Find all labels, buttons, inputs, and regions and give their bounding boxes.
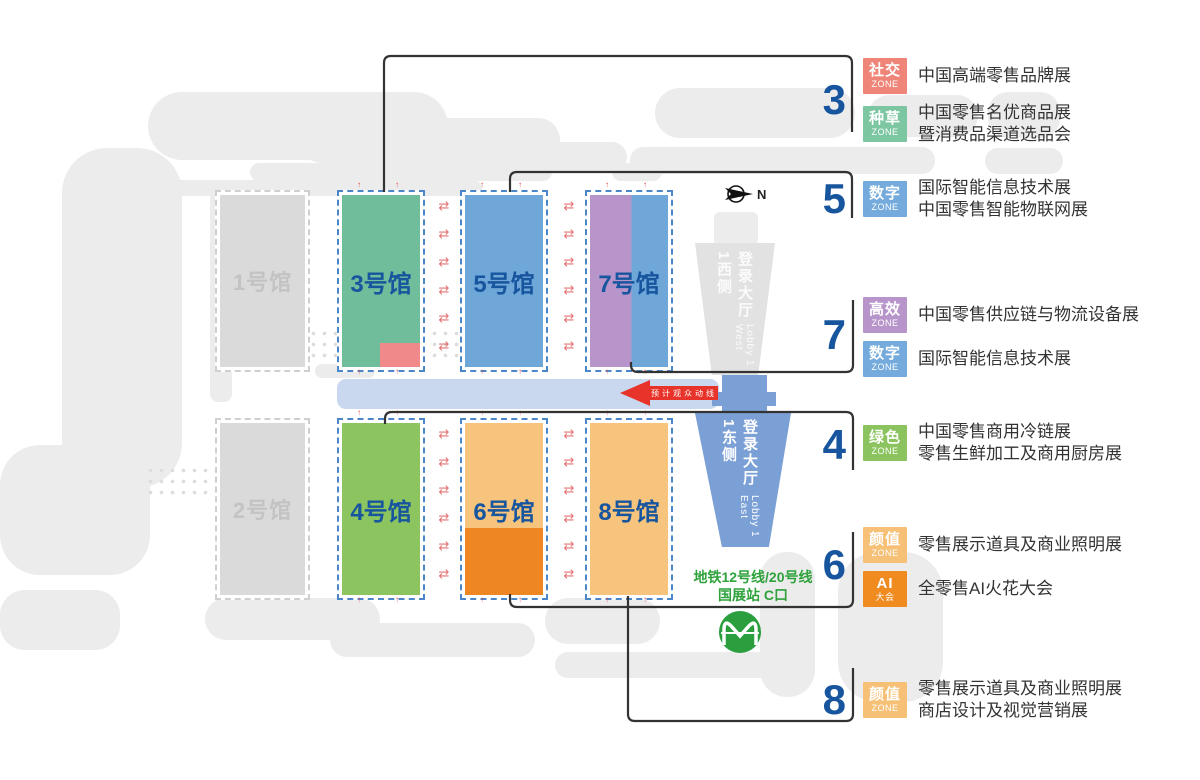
legend-hall-number-8: 8 xyxy=(770,677,846,723)
legend-entry-5: 数字ZONE国际智能信息技术展中国零售智能物联网展 xyxy=(863,177,1088,221)
door-mark: ↑ xyxy=(643,368,647,376)
aisle-arrow-icon: ⇄ xyxy=(431,427,457,440)
door-mark: ↑ xyxy=(357,596,361,604)
hall-4-fill: 4号馆 xyxy=(342,423,420,595)
hall-7: 7号馆 xyxy=(585,190,673,372)
zone-badge-subtitle: ZONE xyxy=(871,127,898,137)
zone-badge: 种草ZONE xyxy=(863,106,907,142)
aisle-arrow-icon: ⇄ xyxy=(431,199,457,212)
zone-exhibition-names: 中国高端零售品牌展 xyxy=(918,65,1071,87)
zone-row: 颜值ZONE零售展示道具及商业照明展 xyxy=(863,527,1122,563)
zone-badge-title: 颜值 xyxy=(869,687,901,703)
zone-row: 数字ZONE国际智能信息技术展中国零售智能物联网展 xyxy=(863,177,1088,221)
legend-hall-number-5: 5 xyxy=(770,176,846,222)
zone-badge-title: 数字 xyxy=(869,186,901,202)
door-mark: ↑ xyxy=(357,409,361,417)
aisle-arrow-icon: ⇄ xyxy=(431,483,457,496)
lobby-1-east-label: 登录大厅1东侧 Lobby 1 East xyxy=(718,419,760,541)
aisle-arrow-icon: ⇄ xyxy=(431,511,457,524)
zone-exhibition-names: 零售展示道具及商业照明展 xyxy=(918,534,1122,556)
bg-shape xyxy=(545,598,660,644)
door-mark: ↑ xyxy=(605,409,609,417)
door-mark: ↑ xyxy=(480,368,484,376)
aisle-arrow-icon: ⇄ xyxy=(431,539,457,552)
aisle-arrow-icon: ⇄ xyxy=(556,483,582,496)
exhibition-name: 中国零售智能物联网展 xyxy=(918,199,1088,221)
aisle-arrow-icon: ⇄ xyxy=(556,567,582,580)
zone-exhibition-names: 零售展示道具及商业照明展商店设计及视觉营销展 xyxy=(918,678,1122,722)
door-mark: ↑ xyxy=(480,181,484,189)
lobby-east-notch xyxy=(712,392,776,406)
door-mark: ↑ xyxy=(480,596,484,604)
legend-hall-number-7: 7 xyxy=(770,312,846,358)
legend-entry-8: 颜值ZONE零售展示道具及商业照明展商店设计及视觉营销展 xyxy=(863,678,1122,722)
zone-row: 数字ZONE国际智能信息技术展 xyxy=(863,341,1139,377)
aisle-arrow-icon: ⇄ xyxy=(556,427,582,440)
hall-6-fill: 6号馆 xyxy=(465,423,543,595)
bg-shape xyxy=(62,148,182,488)
bg-shape xyxy=(0,590,120,650)
aisle-arrow-icon: ⇄ xyxy=(431,339,457,352)
legend-entry-3: 社交ZONE中国高端零售品牌展种草ZONE中国零售名优商品展暨消费品渠道选品会 xyxy=(863,58,1071,146)
aisle-arrow-icon: ⇄ xyxy=(556,227,582,240)
aisle-arrow-icon: ⇄ xyxy=(556,339,582,352)
door-mark: ↑ xyxy=(357,181,361,189)
lobby-east-cn: 登录大厅1东侧 xyxy=(718,419,760,492)
zone-badge: 社交ZONE xyxy=(863,58,907,94)
zone-badge: 数字ZONE xyxy=(863,181,907,217)
exhibition-name: 中国零售名优商品展 xyxy=(918,102,1071,124)
zone-row: 绿色ZONE中国零售商用冷链展零售生鲜加工及商用厨房展 xyxy=(863,421,1122,465)
hall-7-label: 7号馆 xyxy=(590,195,668,367)
zone-exhibition-names: 中国零售商用冷链展零售生鲜加工及商用厨房展 xyxy=(918,421,1122,465)
door-mark: ↑ xyxy=(395,368,399,376)
door-mark: ↑ xyxy=(518,409,522,417)
legend-hall-number-4: 4 xyxy=(770,422,846,468)
door-mark: ↑ xyxy=(480,409,484,417)
exhibition-name: 中国高端零售品牌展 xyxy=(918,65,1071,87)
zone-badge-subtitle: ZONE xyxy=(871,703,898,713)
door-mark: ↑ xyxy=(518,596,522,604)
hall-5-label: 5号馆 xyxy=(465,195,543,367)
aisle-arrow-icon: ⇄ xyxy=(556,255,582,268)
aisle-arrow-icon: ⇄ xyxy=(431,283,457,296)
hall-2-fill: 2号馆 xyxy=(220,423,305,595)
zone-badge: AI大会 xyxy=(863,571,907,607)
lobby-west-cn: 登录大厅1西侧 xyxy=(713,251,755,321)
bg-shape xyxy=(250,163,552,181)
metro-line-info: 地铁12号线/20号线 xyxy=(668,568,838,586)
compass-n-label: N xyxy=(757,187,766,202)
hall-7-fill: 7号馆 xyxy=(590,195,668,367)
bg-shape xyxy=(630,147,935,174)
legend-entry-6: 颜值ZONE零售展示道具及商业照明展AI大会全零售AI火花大会 xyxy=(863,527,1122,607)
door-mark: ↑ xyxy=(643,181,647,189)
door-mark: ↑ xyxy=(605,181,609,189)
metro-logo-icon xyxy=(719,611,761,653)
legend-entry-7: 高效ZONE中国零售供应链与物流设备展数字ZONE国际智能信息技术展 xyxy=(863,297,1139,377)
aisle-arrow-icon: ⇄ xyxy=(431,255,457,268)
hall-6: 6号馆 xyxy=(460,418,548,600)
door-mark: ↑ xyxy=(395,409,399,417)
hall-3: 3号馆 xyxy=(337,190,425,372)
zone-badge-title: 颜值 xyxy=(869,532,901,548)
zone-exhibition-names: 中国零售名优商品展暨消费品渠道选品会 xyxy=(918,102,1071,146)
zone-row: AI大会全零售AI火花大会 xyxy=(863,571,1122,607)
door-mark: ↑ xyxy=(518,181,522,189)
zone-badge-title: AI xyxy=(877,576,894,592)
hall-4-label: 4号馆 xyxy=(342,423,420,595)
bg-shape xyxy=(985,148,1063,174)
hall-8-fill: 8号馆 xyxy=(590,423,668,595)
hall-8: 8号馆 xyxy=(585,418,673,600)
exhibition-name: 全零售AI火花大会 xyxy=(918,578,1053,600)
zone-badge-subtitle: ZONE xyxy=(871,446,898,456)
aisle-arrow-icon: ⇄ xyxy=(556,311,582,324)
zone-exhibition-names: 中国零售供应链与物流设备展 xyxy=(918,304,1139,326)
aisle-arrow-icon: ⇄ xyxy=(431,311,457,324)
aisle-arrow-icon: ⇄ xyxy=(431,567,457,580)
hall-3-fill: 3号馆 xyxy=(342,195,420,367)
zone-badge: 颜值ZONE xyxy=(863,527,907,563)
aisle-arrow-icon: ⇄ xyxy=(431,227,457,240)
zone-badge-title: 高效 xyxy=(869,302,901,318)
bg-shape xyxy=(612,163,662,181)
lobby-west-en: Lobby 1 West xyxy=(713,324,755,369)
exhibition-name: 国际智能信息技术展 xyxy=(918,348,1071,370)
aisle-arrow-icon: ⇄ xyxy=(556,455,582,468)
hall-5: 5号馆 xyxy=(460,190,548,372)
hall-2: 2号馆 xyxy=(215,418,310,600)
aisle-arrow-icon: ⇄ xyxy=(431,455,457,468)
bg-shape xyxy=(330,623,535,657)
hall-2-label: 2号馆 xyxy=(233,493,292,525)
zone-badge: 数字ZONE xyxy=(863,341,907,377)
zone-badge-title: 数字 xyxy=(869,346,901,362)
door-mark: ↑ xyxy=(643,596,647,604)
exhibition-name: 零售展示道具及商业照明展 xyxy=(918,534,1122,556)
zone-exhibition-names: 全零售AI火花大会 xyxy=(918,578,1053,600)
bg-shape xyxy=(0,445,150,575)
lobby-1-west-label: 登录大厅1西侧 Lobby 1 West xyxy=(713,251,755,369)
door-mark: ↑ xyxy=(605,596,609,604)
zone-badge: 颜值ZONE xyxy=(863,682,907,718)
zone-badge-subtitle: ZONE xyxy=(871,202,898,212)
lobby-east-en: Lobby 1 East xyxy=(718,495,760,541)
exhibition-floor-plan: 登录大厅1西侧 Lobby 1 West 登录大厅1东侧 Lobby 1 Eas… xyxy=(0,0,1200,780)
door-mark: ↑ xyxy=(605,368,609,376)
zone-badge-subtitle: ZONE xyxy=(871,318,898,328)
zone-row: 高效ZONE中国零售供应链与物流设备展 xyxy=(863,297,1139,333)
door-mark: ↑ xyxy=(518,368,522,376)
legend-hall-number-3: 3 xyxy=(770,77,846,123)
exhibition-name: 中国零售商用冷链展 xyxy=(918,421,1122,443)
hall-8-label: 8号馆 xyxy=(590,423,668,595)
door-mark: ↑ xyxy=(643,409,647,417)
zone-row: 颜值ZONE零售展示道具及商业照明展商店设计及视觉营销展 xyxy=(863,678,1122,722)
hall-4: 4号馆 xyxy=(337,418,425,600)
metro-station-text: 地铁12号线/20号线 国展站 C口 xyxy=(668,568,838,604)
metro-exit-info: 国展站 C口 xyxy=(668,586,838,604)
exhibition-name: 中国零售供应链与物流设备展 xyxy=(918,304,1139,326)
lobby-1-west: 登录大厅1西侧 Lobby 1 West xyxy=(695,243,775,375)
zone-badge-title: 绿色 xyxy=(869,430,901,446)
exhibition-name: 零售生鲜加工及商用厨房展 xyxy=(918,443,1122,465)
aisle-arrow-icon: ⇄ xyxy=(556,539,582,552)
zone-badge-title: 种草 xyxy=(869,111,901,127)
aisle-arrow-icon: ⇄ xyxy=(556,511,582,524)
zone-badge-subtitle: ZONE xyxy=(871,79,898,89)
hall-1: 1号馆 xyxy=(215,190,310,372)
hall-1-fill: 1号馆 xyxy=(220,195,305,367)
bg-shape xyxy=(555,652,785,678)
door-mark: ↑ xyxy=(395,596,399,604)
exhibition-name: 零售展示道具及商业照明展 xyxy=(918,678,1122,700)
zone-badge: 绿色ZONE xyxy=(863,425,907,461)
zone-badge-subtitle: 大会 xyxy=(875,592,894,602)
zone-badge-subtitle: ZONE xyxy=(871,548,898,558)
hall-1-label: 1号馆 xyxy=(233,265,292,297)
hall-5-fill: 5号馆 xyxy=(465,195,543,367)
zone-row: 种草ZONE中国零售名优商品展暨消费品渠道选品会 xyxy=(863,102,1071,146)
zone-exhibition-names: 国际智能信息技术展中国零售智能物联网展 xyxy=(918,177,1088,221)
zone-row: 社交ZONE中国高端零售品牌展 xyxy=(863,58,1071,94)
visitor-corridor xyxy=(337,379,719,409)
zone-exhibition-names: 国际智能信息技术展 xyxy=(918,348,1071,370)
zone-badge-title: 社交 xyxy=(869,63,901,79)
hall-6-label: 6号馆 xyxy=(465,423,543,595)
aisle-arrow-icon: ⇄ xyxy=(556,283,582,296)
door-mark: ↑ xyxy=(395,181,399,189)
exhibition-name: 暨消费品渠道选品会 xyxy=(918,124,1071,146)
door-mark: ↑ xyxy=(357,368,361,376)
aisle-arrow-icon: ⇄ xyxy=(556,199,582,212)
zone-badge: 高效ZONE xyxy=(863,297,907,333)
exhibition-name: 国际智能信息技术展 xyxy=(918,177,1088,199)
compass-icon: N xyxy=(725,186,766,202)
legend-entry-4: 绿色ZONE中国零售商用冷链展零售生鲜加工及商用厨房展 xyxy=(863,421,1122,465)
exhibition-name: 商店设计及视觉营销展 xyxy=(918,700,1122,722)
zone-badge-subtitle: ZONE xyxy=(871,362,898,372)
hall-3-label: 3号馆 xyxy=(342,195,420,367)
bg-shape xyxy=(714,212,758,246)
